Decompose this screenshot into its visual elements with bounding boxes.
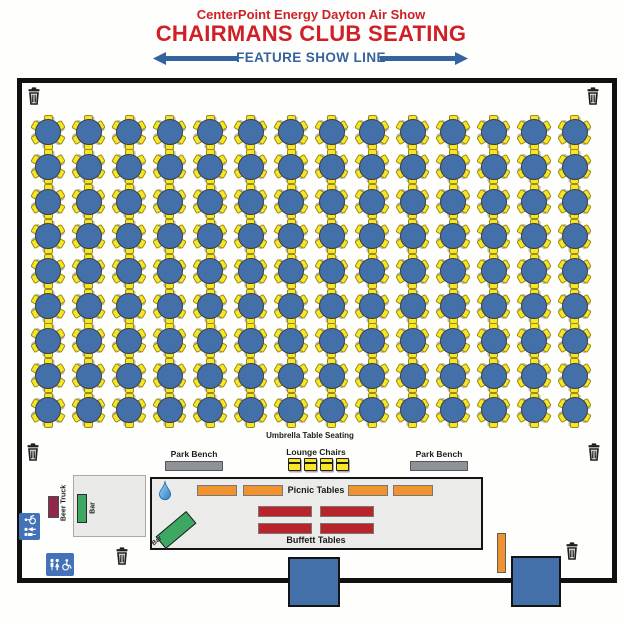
restroom-pictograms (23, 515, 36, 539)
table-top (116, 119, 142, 145)
table-top (440, 119, 466, 145)
buffet-table (258, 523, 312, 534)
picnic-table (348, 485, 388, 496)
round-table (440, 119, 466, 145)
table-top (481, 293, 507, 319)
round-table (116, 293, 142, 319)
round-table (197, 189, 223, 215)
round-table (400, 293, 426, 319)
round-table (238, 258, 264, 284)
buffet-table (320, 506, 374, 517)
table-top (238, 363, 264, 389)
table-top (562, 328, 588, 354)
round-table (76, 189, 102, 215)
round-table (359, 119, 385, 145)
trash-can-icon (586, 87, 600, 105)
table-top (76, 223, 102, 249)
round-table (35, 258, 61, 284)
bar-vertical-label: Bar (90, 502, 97, 514)
round-table (359, 328, 385, 354)
table-top (76, 154, 102, 180)
round-table (319, 119, 345, 145)
table-top (562, 119, 588, 145)
restroom-pictograms (48, 558, 72, 571)
park-bench-left (165, 461, 223, 471)
table-top (319, 154, 345, 180)
round-table (76, 154, 102, 180)
round-table (521, 363, 547, 389)
round-table (197, 293, 223, 319)
round-table (116, 328, 142, 354)
table-top (238, 397, 264, 423)
round-table (319, 258, 345, 284)
lounge-chair-icon (288, 458, 301, 471)
round-table (116, 119, 142, 145)
round-table (521, 328, 547, 354)
round-table (400, 154, 426, 180)
table-top (440, 328, 466, 354)
round-table (76, 293, 102, 319)
round-table (35, 119, 61, 145)
round-table (319, 328, 345, 354)
table-top (481, 328, 507, 354)
table-top (440, 154, 466, 180)
buffet-table (320, 523, 374, 534)
round-table (440, 189, 466, 215)
table-top (76, 258, 102, 284)
table-top (400, 189, 426, 215)
round-table (278, 223, 304, 249)
round-table (481, 397, 507, 423)
round-table (278, 154, 304, 180)
table-top (76, 397, 102, 423)
round-table (278, 293, 304, 319)
round-table (197, 154, 223, 180)
round-table (521, 189, 547, 215)
round-table (197, 363, 223, 389)
round-table (157, 258, 183, 284)
round-table (521, 154, 547, 180)
water-drop-icon (157, 480, 173, 506)
round-table (76, 363, 102, 389)
table-top (400, 397, 426, 423)
round-table (35, 154, 61, 180)
table-top (157, 223, 183, 249)
table-top (359, 189, 385, 215)
lounge-chair-icon (336, 458, 349, 471)
round-table (440, 397, 466, 423)
round-table (440, 363, 466, 389)
round-table (35, 363, 61, 389)
round-table (116, 154, 142, 180)
table-top (481, 154, 507, 180)
table-top (116, 363, 142, 389)
round-table (319, 363, 345, 389)
table-top (35, 363, 61, 389)
round-table (157, 293, 183, 319)
table-top (35, 154, 61, 180)
table-top (157, 189, 183, 215)
table-top (359, 154, 385, 180)
round-table (521, 258, 547, 284)
round-table (400, 363, 426, 389)
trash-can-icon (26, 443, 40, 461)
round-table (440, 293, 466, 319)
picnic-table (393, 485, 433, 496)
round-table (562, 293, 588, 319)
round-table (197, 258, 223, 284)
park-bench-right (410, 461, 468, 471)
table-top (197, 258, 223, 284)
beer-truck-label: Beer Truck (61, 485, 68, 521)
round-table (481, 363, 507, 389)
round-table (359, 363, 385, 389)
round-table (238, 189, 264, 215)
round-table (440, 154, 466, 180)
table-top (116, 258, 142, 284)
trash-can-icon (587, 443, 601, 461)
table-top (278, 293, 304, 319)
round-table (359, 258, 385, 284)
feature-show-line-label: FEATURE SHOW LINE (0, 50, 622, 65)
table-top (521, 293, 547, 319)
table-top (278, 154, 304, 180)
round-table (400, 189, 426, 215)
round-table (562, 397, 588, 423)
table-top (319, 223, 345, 249)
round-table (238, 363, 264, 389)
table-top (197, 363, 223, 389)
round-table (521, 293, 547, 319)
table-top (76, 328, 102, 354)
round-table (238, 397, 264, 423)
round-table (359, 293, 385, 319)
round-table (562, 223, 588, 249)
round-table (319, 154, 345, 180)
trash-can-icon (27, 87, 41, 105)
round-table (400, 258, 426, 284)
round-table (278, 328, 304, 354)
table-top (116, 154, 142, 180)
round-table (278, 189, 304, 215)
round-table (481, 293, 507, 319)
table-top (359, 258, 385, 284)
table-top (157, 328, 183, 354)
round-table (157, 363, 183, 389)
round-table (440, 258, 466, 284)
table-top (157, 119, 183, 145)
round-table (359, 223, 385, 249)
round-table (35, 293, 61, 319)
round-table (76, 397, 102, 423)
round-table (238, 293, 264, 319)
table-top (562, 154, 588, 180)
round-table (319, 189, 345, 215)
table-top (197, 328, 223, 354)
round-table (319, 223, 345, 249)
table-top (319, 189, 345, 215)
table-top (562, 258, 588, 284)
lounge-chair-icon (304, 458, 317, 471)
round-table (400, 328, 426, 354)
round-table (359, 189, 385, 215)
round-table (116, 397, 142, 423)
round-table (278, 258, 304, 284)
restroom-sign-icon (19, 513, 40, 540)
round-table (278, 363, 304, 389)
table-top (238, 223, 264, 249)
round-table (197, 328, 223, 354)
table-top (278, 328, 304, 354)
round-table (562, 363, 588, 389)
table-top (319, 397, 345, 423)
round-table (319, 397, 345, 423)
round-table (562, 258, 588, 284)
table-top (197, 119, 223, 145)
table-top (238, 328, 264, 354)
table-top (481, 189, 507, 215)
table-top (238, 154, 264, 180)
round-table (197, 397, 223, 423)
round-table (481, 189, 507, 215)
table-top (319, 258, 345, 284)
round-table (562, 189, 588, 215)
table-top (157, 154, 183, 180)
table-top (319, 363, 345, 389)
buffet-tables-label: Buffett Tables (286, 535, 345, 545)
table-top (521, 258, 547, 284)
table-top (521, 154, 547, 180)
table-top (562, 397, 588, 423)
round-table (76, 258, 102, 284)
table-top (35, 328, 61, 354)
table-top (481, 258, 507, 284)
round-table (76, 328, 102, 354)
beer-truck (48, 496, 59, 518)
table-top (562, 223, 588, 249)
picnic-tables-label: Picnic Tables (288, 485, 345, 495)
table-top (76, 363, 102, 389)
right-arrow-icon (380, 52, 468, 65)
table-top (35, 258, 61, 284)
table-top (400, 363, 426, 389)
table-top (319, 293, 345, 319)
round-table (521, 223, 547, 249)
table-top (359, 328, 385, 354)
lounge-chairs-label: Lounge Chairs (286, 447, 346, 457)
round-table (238, 223, 264, 249)
table-top (562, 189, 588, 215)
table-top (157, 363, 183, 389)
table-top (400, 223, 426, 249)
table-top (440, 293, 466, 319)
round-table (116, 363, 142, 389)
round-table (359, 154, 385, 180)
table-top (481, 363, 507, 389)
table-top (440, 258, 466, 284)
round-table (157, 397, 183, 423)
table-top (76, 293, 102, 319)
picnic-table (243, 485, 283, 496)
round-table (521, 119, 547, 145)
table-top (562, 293, 588, 319)
round-table (481, 328, 507, 354)
table-top (278, 258, 304, 284)
round-table (481, 119, 507, 145)
table-top (197, 189, 223, 215)
round-table (440, 223, 466, 249)
round-table (76, 119, 102, 145)
round-table (157, 328, 183, 354)
event-subtitle: CenterPoint Energy Dayton Air Show (0, 7, 622, 22)
table-top (76, 119, 102, 145)
entrance-structure-right (511, 556, 561, 607)
round-table (238, 119, 264, 145)
page-title: CHAIRMANS CLUB SEATING (0, 21, 622, 47)
round-table (400, 397, 426, 423)
table-top (359, 363, 385, 389)
table-top (197, 154, 223, 180)
table-top (157, 397, 183, 423)
table-top (157, 293, 183, 319)
round-table (35, 328, 61, 354)
round-table (278, 397, 304, 423)
round-table (157, 119, 183, 145)
table-top (238, 119, 264, 145)
picnic-table (197, 485, 237, 496)
round-table (319, 293, 345, 319)
bar-counter-vertical (77, 494, 87, 523)
round-table (562, 328, 588, 354)
table-top (35, 189, 61, 215)
round-table (116, 223, 142, 249)
table-top (35, 119, 61, 145)
table-top (116, 328, 142, 354)
round-table (238, 154, 264, 180)
round-table (359, 397, 385, 423)
table-top (562, 363, 588, 389)
round-table (521, 397, 547, 423)
table-top (278, 119, 304, 145)
table-top (238, 258, 264, 284)
table-top (278, 363, 304, 389)
park-bench-right-label: Park Bench (416, 449, 463, 459)
table-top (400, 154, 426, 180)
table-top (35, 293, 61, 319)
round-table (440, 328, 466, 354)
round-table (400, 223, 426, 249)
lounge-chairs-group (288, 458, 349, 471)
table-top (157, 258, 183, 284)
buffet-table (258, 506, 312, 517)
table-top (440, 189, 466, 215)
table-top (359, 119, 385, 145)
restroom-sign-icon (46, 553, 74, 576)
lounge-chair-icon (320, 458, 333, 471)
round-table (197, 223, 223, 249)
table-top (116, 189, 142, 215)
round-table (197, 119, 223, 145)
table-top (481, 119, 507, 145)
table-top (400, 328, 426, 354)
table-top (521, 189, 547, 215)
table-top (400, 258, 426, 284)
table-top (521, 119, 547, 145)
table-top (278, 189, 304, 215)
table-top (76, 189, 102, 215)
table-top (359, 293, 385, 319)
seating-chart-page: CenterPoint Energy Dayton Air Show CHAIR… (0, 0, 622, 622)
round-table (400, 119, 426, 145)
round-table (157, 189, 183, 215)
table-top (197, 293, 223, 319)
round-table (562, 119, 588, 145)
entrance-structure-left (288, 557, 340, 607)
round-table (116, 258, 142, 284)
round-table (481, 223, 507, 249)
umbrella-seating-label: Umbrella Table Seating (266, 431, 354, 440)
service-table-vertical (497, 533, 506, 573)
round-table (35, 189, 61, 215)
round-table (116, 189, 142, 215)
park-bench-left-label: Park Bench (171, 449, 218, 459)
table-top (481, 223, 507, 249)
round-table (35, 397, 61, 423)
trash-can-icon (115, 547, 129, 565)
round-table (157, 223, 183, 249)
table-top (481, 397, 507, 423)
round-table (76, 223, 102, 249)
round-table (562, 154, 588, 180)
table-top (400, 119, 426, 145)
table-top (319, 119, 345, 145)
table-top (238, 189, 264, 215)
table-top (400, 293, 426, 319)
round-table (157, 154, 183, 180)
table-top (521, 328, 547, 354)
table-top (440, 363, 466, 389)
table-top (238, 293, 264, 319)
table-top (521, 363, 547, 389)
round-table (238, 328, 264, 354)
table-top (116, 293, 142, 319)
round-table (481, 258, 507, 284)
round-table (278, 119, 304, 145)
round-table (35, 223, 61, 249)
round-table (481, 154, 507, 180)
trash-can-icon (565, 542, 579, 560)
table-top (319, 328, 345, 354)
